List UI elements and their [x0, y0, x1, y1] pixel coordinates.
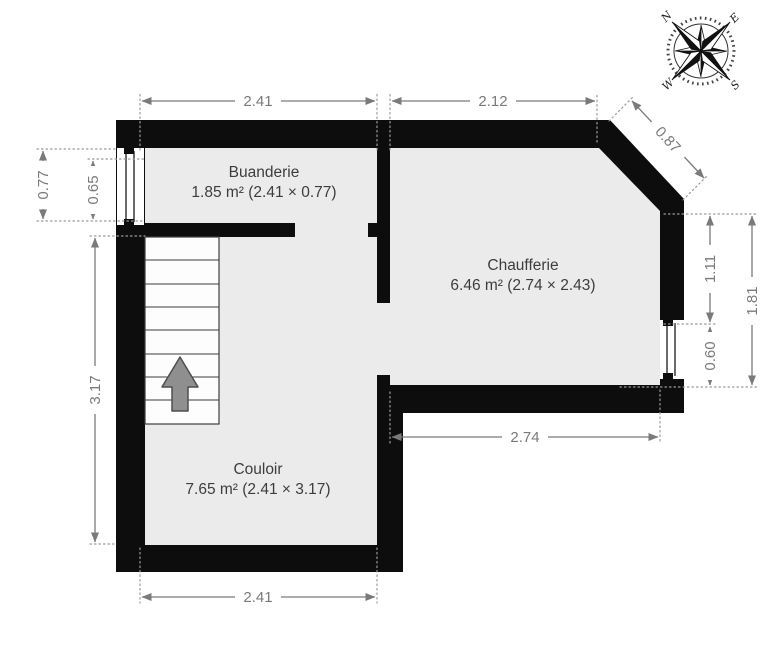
dimension-label-group: 3.17 — [85, 366, 105, 414]
window-left-cap — [124, 219, 134, 225]
door-jamb-chaufferie — [377, 375, 390, 387]
dimension-label: 1.81 — [744, 286, 761, 315]
compass-rose: N E S W — [625, 0, 768, 127]
dimension-label: 0.77 — [35, 170, 52, 199]
dimension-label: 2.12 — [478, 93, 507, 110]
stairs — [145, 237, 219, 424]
dimension-label-group: 1.81 — [742, 277, 762, 325]
window-right-cap — [663, 320, 673, 326]
extension-line — [609, 96, 634, 121]
window-right — [660, 320, 684, 379]
room-name: Couloir — [233, 461, 282, 478]
window-right-opening — [660, 320, 684, 379]
dimension-label-group: 0.87 — [644, 115, 691, 164]
dimension-label: 2.41 — [243, 589, 272, 606]
dimension-label-group: 0.60 — [700, 332, 720, 380]
window-left-cap — [124, 148, 134, 154]
dimension-label: 2.41 — [243, 93, 272, 110]
compass-label-south: S — [728, 78, 743, 93]
wall-buanderie-couloir — [145, 223, 295, 237]
door-jamb-buanderie — [368, 223, 390, 237]
extension-line — [683, 175, 708, 200]
dimension-label: 0.60 — [702, 341, 719, 370]
dimension-label: 2.74 — [510, 429, 539, 446]
dimension-label: 3.17 — [87, 375, 104, 404]
room-name: Buanderie — [229, 164, 300, 181]
room-area: 1.85 m² (2.41 × 0.77) — [191, 184, 336, 201]
dim-right-total: 1.81 — [742, 216, 762, 385]
room-area: 6.46 m² (2.74 × 2.43) — [450, 277, 595, 294]
dimension-label-group: 1.11 — [700, 245, 720, 293]
window-right-cap — [663, 373, 673, 379]
dimension-label-group: 0.77 — [33, 161, 53, 209]
dimension-label: 0.65 — [85, 175, 102, 204]
dimension-label: 1.11 — [702, 255, 719, 283]
room-name: Chaufferie — [487, 257, 558, 274]
room-area: 7.65 m² (2.41 × 3.17) — [185, 481, 330, 498]
dimension-label-group: 0.65 — [83, 166, 103, 214]
floor-plan: Buanderie 1.85 m² (2.41 × 0.77) Chauffer… — [0, 0, 768, 660]
